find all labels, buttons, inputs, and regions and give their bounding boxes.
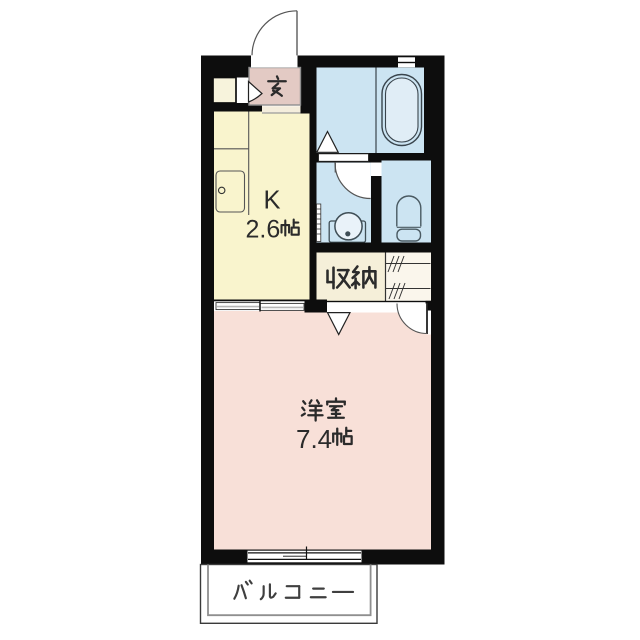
svg-text:2.6: 2.6 [246,216,281,244]
svg-text:K: K [264,186,281,214]
svg-text:7.4: 7.4 [296,424,332,454]
